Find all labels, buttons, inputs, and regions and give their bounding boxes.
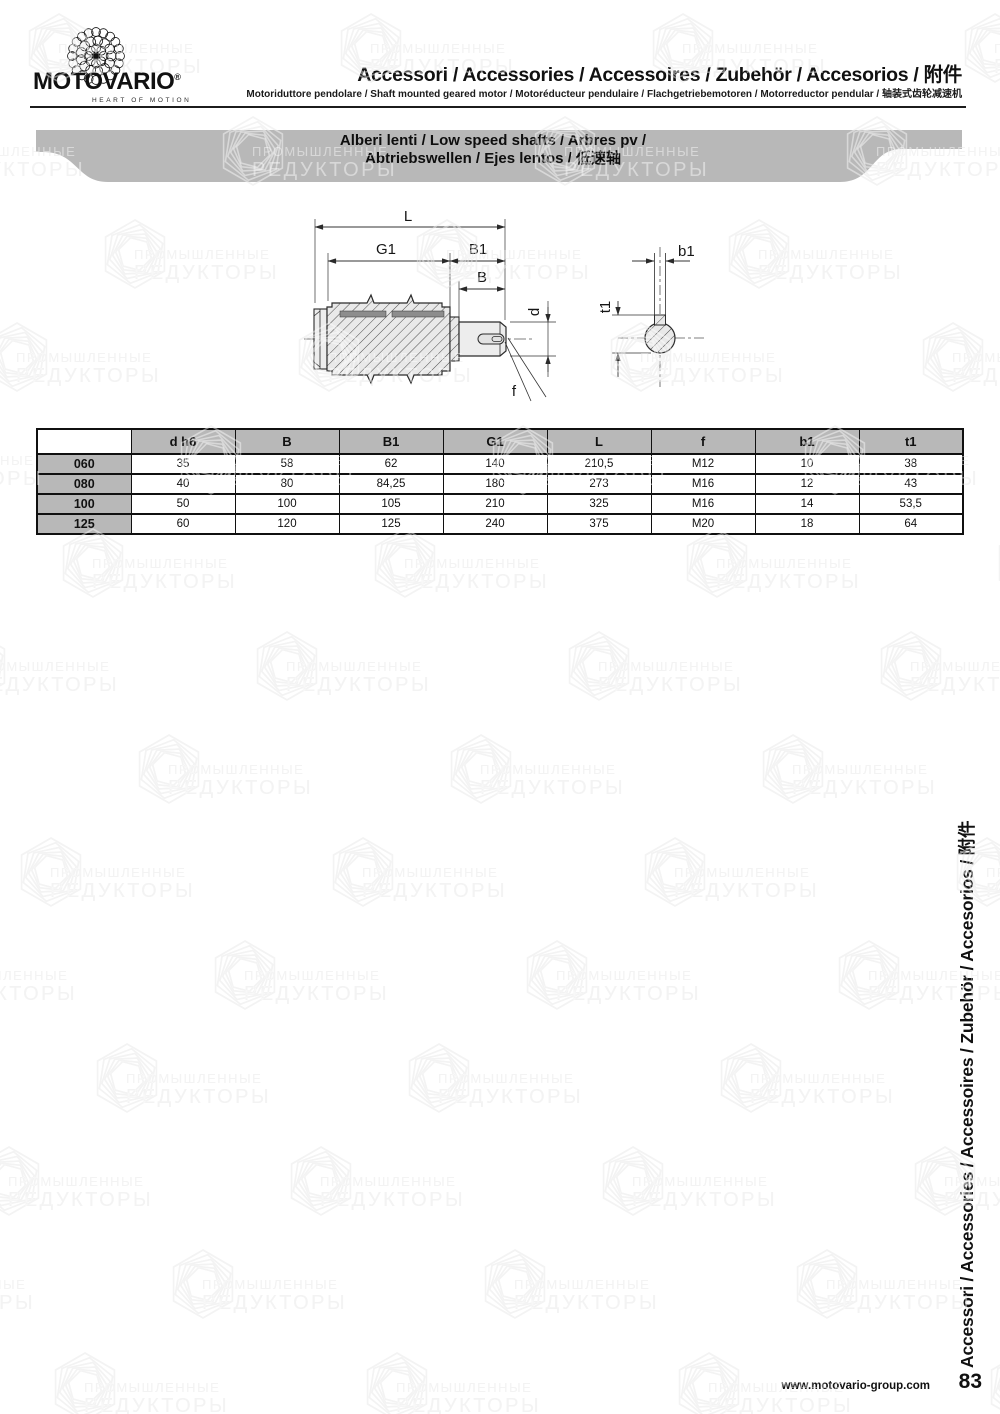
table-cell: 62 — [339, 454, 443, 474]
shaft-end-view — [645, 323, 675, 353]
table-col-header: t1 — [859, 429, 963, 454]
table-col-header: B — [235, 429, 339, 454]
table-cell: 240 — [443, 514, 547, 534]
table-cell: 60 — [131, 514, 235, 534]
dim-label-L: L — [404, 208, 412, 225]
page-content: MOTOVARIO® HEART OF MOTION Accessori / A… — [0, 0, 1000, 1414]
page-subtitle: Motoriduttore pendolare / Shaft mounted … — [246, 85, 962, 100]
table-cell: 210,5 — [547, 454, 651, 474]
section-title-line1: Alberi lenti / Low speed shafts / Arbres… — [33, 132, 953, 150]
table-cell: M16 — [651, 494, 755, 514]
dim-label-t1: t1 — [597, 301, 614, 314]
table-col-header: d h6 — [131, 429, 235, 454]
dim-label-G1: G1 — [376, 241, 396, 258]
table-cell: 210 — [443, 494, 547, 514]
section-title-line2: Abtriebswellen / Ejes lentos / 低速轴 — [33, 150, 953, 168]
table-cell: 180 — [443, 474, 547, 494]
dimension-table-body: 060355862140210,5M121038080408084,251802… — [37, 454, 963, 534]
dim-label-B: B — [477, 269, 487, 286]
table-cell: 14 — [755, 494, 859, 514]
table-corner-cell — [37, 429, 131, 454]
table-cell: 140 — [443, 454, 547, 474]
table-cell: 80 — [235, 474, 339, 494]
internal-keyway-band — [392, 311, 444, 317]
table-cell: M12 — [651, 454, 755, 474]
key-cross-section — [655, 315, 666, 325]
table-row: 10050100105210325M161453,5 — [37, 494, 963, 514]
side-section-label: Accessori / Accessories / Accessoires / … — [954, 802, 978, 1368]
table-cell: 43 — [859, 474, 963, 494]
dimension-table: d h6BB1G1Lfb1t1 060355862140210,5M121038… — [36, 428, 964, 535]
dim-label-b1: b1 — [678, 243, 695, 260]
brand-name: MOTOVARIO® — [33, 68, 180, 96]
shaft-technical-drawing: L G1 B1 B d f — [280, 195, 840, 425]
dim-label-d: d — [526, 308, 543, 316]
table-cell: 125 — [339, 514, 443, 534]
table-row: 060355862140210,5M121038 — [37, 454, 963, 474]
shaft-collar — [450, 317, 459, 361]
page-title: Accessori / Accessories / Accessoires / … — [357, 58, 962, 87]
shaft-main-body — [327, 295, 450, 383]
table-row: 080408084,25180273M161243 — [37, 474, 963, 494]
table-cell: 100 — [235, 494, 339, 514]
table-col-header: b1 — [755, 429, 859, 454]
internal-keyway-band — [340, 311, 386, 317]
table-cell: 273 — [547, 474, 651, 494]
table-cell: M20 — [651, 514, 755, 534]
table-cell: 40 — [131, 474, 235, 494]
dim-label-B1: B1 — [469, 241, 487, 258]
header-divider — [30, 106, 966, 108]
table-cell: 64 — [859, 514, 963, 534]
table-col-header: G1 — [443, 429, 547, 454]
table-cell: 375 — [547, 514, 651, 534]
table-cell: M16 — [651, 474, 755, 494]
table-cell: 10 — [755, 454, 859, 474]
table-cell: 105 — [339, 494, 443, 514]
table-row: 12560120125240375M201864 — [37, 514, 963, 534]
table-cell: 50 — [131, 494, 235, 514]
page-number: 83 — [944, 1370, 982, 1394]
table-cell: 84,25 — [339, 474, 443, 494]
dimension-table-header-row: d h6BB1G1Lfb1t1 — [37, 429, 963, 454]
table-cell: 120 — [235, 514, 339, 534]
website-url: www.motovario-group.com — [782, 1380, 930, 1392]
dim-label-f: f — [512, 383, 517, 400]
row-label: 100 — [37, 494, 131, 514]
table-cell: 18 — [755, 514, 859, 534]
brand-tagline: HEART OF MOTION — [92, 97, 191, 104]
row-label: 080 — [37, 474, 131, 494]
table-cell: 38 — [859, 454, 963, 474]
row-label: 060 — [37, 454, 131, 474]
table-col-header: B1 — [339, 429, 443, 454]
shaft-keyway-slot — [478, 334, 504, 344]
table-col-header: L — [547, 429, 651, 454]
catalog-page: ПРОМЫШЛЕННЫЕРЕДУКТОРЫПРОМЫШЛЕННЫЕРЕДУКТО… — [0, 0, 1000, 1414]
section-title: Alberi lenti / Low speed shafts / Arbres… — [33, 132, 953, 167]
table-cell: 325 — [547, 494, 651, 514]
table-cell: 58 — [235, 454, 339, 474]
table-cell: 12 — [755, 474, 859, 494]
shaft-end-cap — [314, 309, 327, 369]
registered-mark: ® — [174, 72, 180, 82]
table-cell: 53,5 — [859, 494, 963, 514]
table-col-header: f — [651, 429, 755, 454]
table-cell: 35 — [131, 454, 235, 474]
row-label: 125 — [37, 514, 131, 534]
